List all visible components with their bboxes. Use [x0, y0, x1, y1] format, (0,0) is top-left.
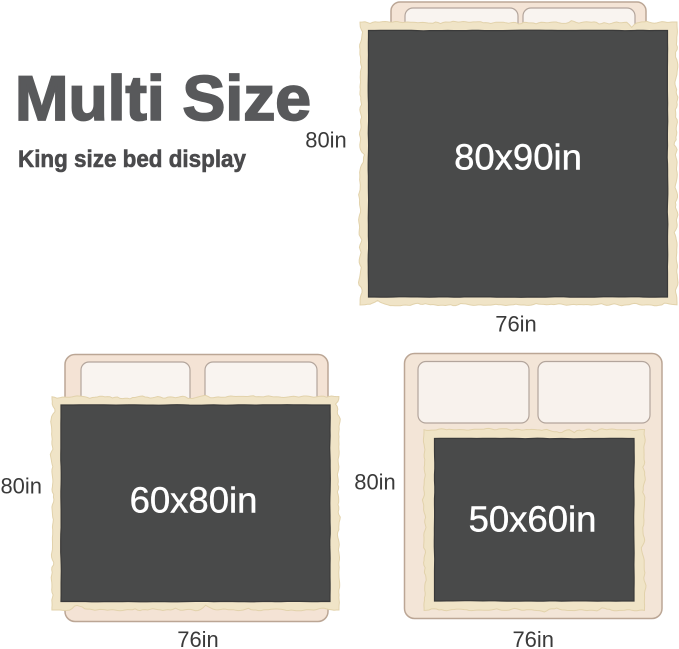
- svg-text:76in: 76in: [177, 627, 219, 649]
- svg-text:50x60in: 50x60in: [469, 499, 597, 540]
- svg-text:60x80in: 60x80in: [130, 480, 258, 521]
- svg-text:76in: 76in: [512, 627, 554, 649]
- svg-text:King size bed display: King size bed display: [18, 146, 247, 173]
- svg-text:Multi Size: Multi Size: [15, 64, 311, 134]
- svg-text:80in: 80in: [305, 128, 347, 153]
- svg-text:80x90in: 80x90in: [454, 137, 582, 178]
- svg-text:80in: 80in: [354, 470, 396, 495]
- svg-text:76in: 76in: [495, 312, 537, 337]
- svg-text:80in: 80in: [0, 474, 42, 499]
